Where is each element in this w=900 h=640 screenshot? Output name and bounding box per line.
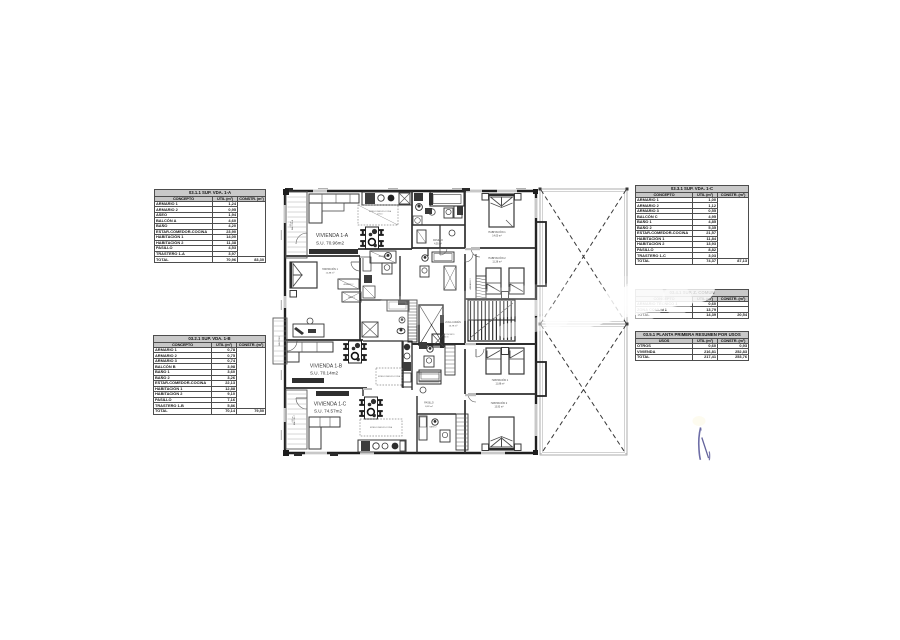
svg-text:S.U. 74.57m2: S.U. 74.57m2 (314, 409, 343, 414)
svg-text:PASILLO: PASILLO (424, 402, 434, 405)
svg-text:ESTAR-COMEDOR-COCINA: ESTAR-COMEDOR-COCINA (378, 375, 401, 378)
svg-text:VIVIENDA 1-C: VIVIENDA 1-C (314, 402, 347, 408)
svg-text:13,93 m²: 13,93 m² (494, 406, 503, 409)
svg-text:VIVIENDA 1-A: VIVIENDA 1-A (316, 233, 349, 239)
svg-text:BAÑO 1: BAÑO 1 (348, 296, 355, 299)
svg-text:23,90 m²: 23,90 m² (377, 213, 384, 216)
svg-text:ESTAR-COMEDOR-COCINA: ESTAR-COMEDOR-COCINA (369, 210, 392, 213)
svg-text:ESTAR-COMEDOR-COCINA: ESTAR-COMEDOR-COCINA (370, 426, 393, 429)
svg-text:ARMARIO 3: ARMARIO 3 (469, 278, 472, 290)
svg-text:4,55 m²: 4,55 m² (434, 243, 442, 246)
svg-text:ARMARIO 2: ARMARIO 2 (344, 283, 354, 286)
svg-text:14,00 m²: 14,00 m² (492, 235, 502, 238)
svg-text:HABITACIÓN 1: HABITACIÓN 1 (492, 379, 509, 382)
svg-text:BAÑO 2: BAÑO 2 (430, 426, 437, 429)
svg-text:HABITACIÓN 2: HABITACIÓN 2 (491, 402, 508, 405)
svg-text:HABITACIÓN 1: HABITACIÓN 1 (488, 231, 506, 234)
svg-text:4,95 m²: 4,95 m² (291, 416, 294, 422)
svg-text:PASILLO: PASILLO (433, 239, 443, 242)
svg-text:S.U. 70.14m2: S.U. 70.14m2 (310, 371, 339, 376)
svg-text:11,38 m²: 11,38 m² (492, 261, 501, 264)
svg-text:12,88 m²: 12,88 m² (326, 271, 335, 274)
svg-text:11,88 m²: 11,88 m² (496, 383, 505, 386)
svg-text:S.U. 70.96m2: S.U. 70.96m2 (316, 241, 345, 246)
svg-text:8,82 m²: 8,82 m² (425, 405, 433, 408)
svg-text:HABITACIÓN 1: HABITACIÓN 1 (322, 268, 339, 271)
svg-text:HABITACIÓN 2: HABITACIÓN 2 (488, 257, 506, 260)
svg-text:VIVIENDA 1-B: VIVIENDA 1-B (310, 364, 343, 370)
svg-text:13,79 m²: 13,79 m² (449, 325, 458, 328)
svg-text:BALCÓN B: BALCÓN B (278, 335, 281, 345)
